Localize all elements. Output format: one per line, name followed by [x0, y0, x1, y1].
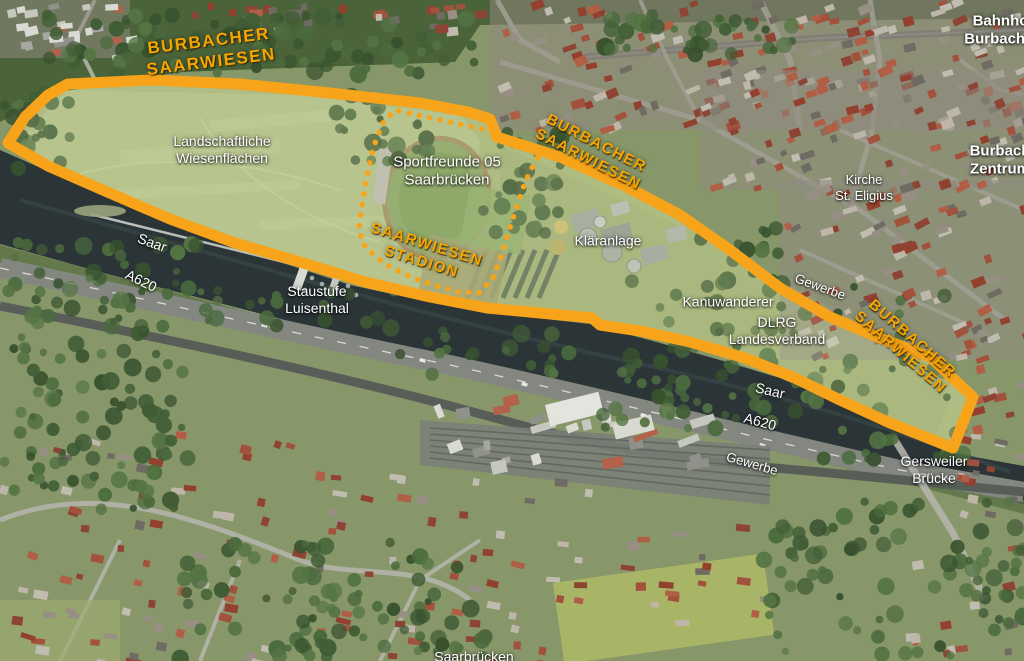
map-label-burbach-zentrum: Burbach Zentrum	[970, 143, 1024, 180]
map-label-klaeranlage: Kläranlage	[575, 232, 642, 249]
map-label-sportfreunde-05-saarbruecken: Sportfreunde 05 Saarbrücken	[393, 154, 501, 191]
map-label-kanuwanderer: Kanuwanderer	[682, 293, 773, 310]
map-label-a620-west: A620	[123, 266, 160, 296]
map-label-burbacher-saarwiesen-mid: BURBACHER SAARWIESEN	[532, 109, 652, 194]
map-label-saar-east: Saar	[754, 379, 787, 402]
map-label-gewerbe-east: Gewerbe	[793, 271, 848, 304]
map-label-staustufe-luisenthal: Staustufe Luisenthal	[285, 283, 349, 317]
map-label-gewerbe-south: Gewerbe	[724, 449, 779, 479]
map-label-kirche-st-eligius: Kirche St. Eligius	[835, 172, 893, 204]
saarwiesen-aerial-map: BURBACHER SAARWIESENBURBACHER SAARWIESEN…	[0, 0, 1024, 661]
map-label-burbacher-saarwiesen-east: BURBACHER SAARWIESEN	[850, 294, 962, 398]
map-label-saarwiesen-stadion: SAARWIESEN STADION	[363, 219, 485, 288]
map-label-saar-west: Saar	[135, 230, 169, 256]
map-label-gersweiler-bruecke: Gersweiler Brücke	[901, 453, 968, 487]
map-labels-layer: BURBACHER SAARWIESENBURBACHER SAARWIESEN…	[0, 0, 1024, 661]
map-label-bahnhof-burbach: Bahnhof Burbach M	[964, 13, 1024, 50]
map-label-dlrg-landesverband: DLRG Landesverband	[729, 314, 826, 348]
map-label-landschaftliche-wiesenflaechen: Landschaftliche Wiesenflächen	[173, 133, 270, 167]
map-label-burbacher-saarwiesen-nw: BURBACHER SAARWIESEN	[143, 24, 277, 81]
map-label-saarbruecken-south: Saarbrücken	[434, 648, 513, 661]
map-label-a620-east: A620	[742, 410, 778, 435]
